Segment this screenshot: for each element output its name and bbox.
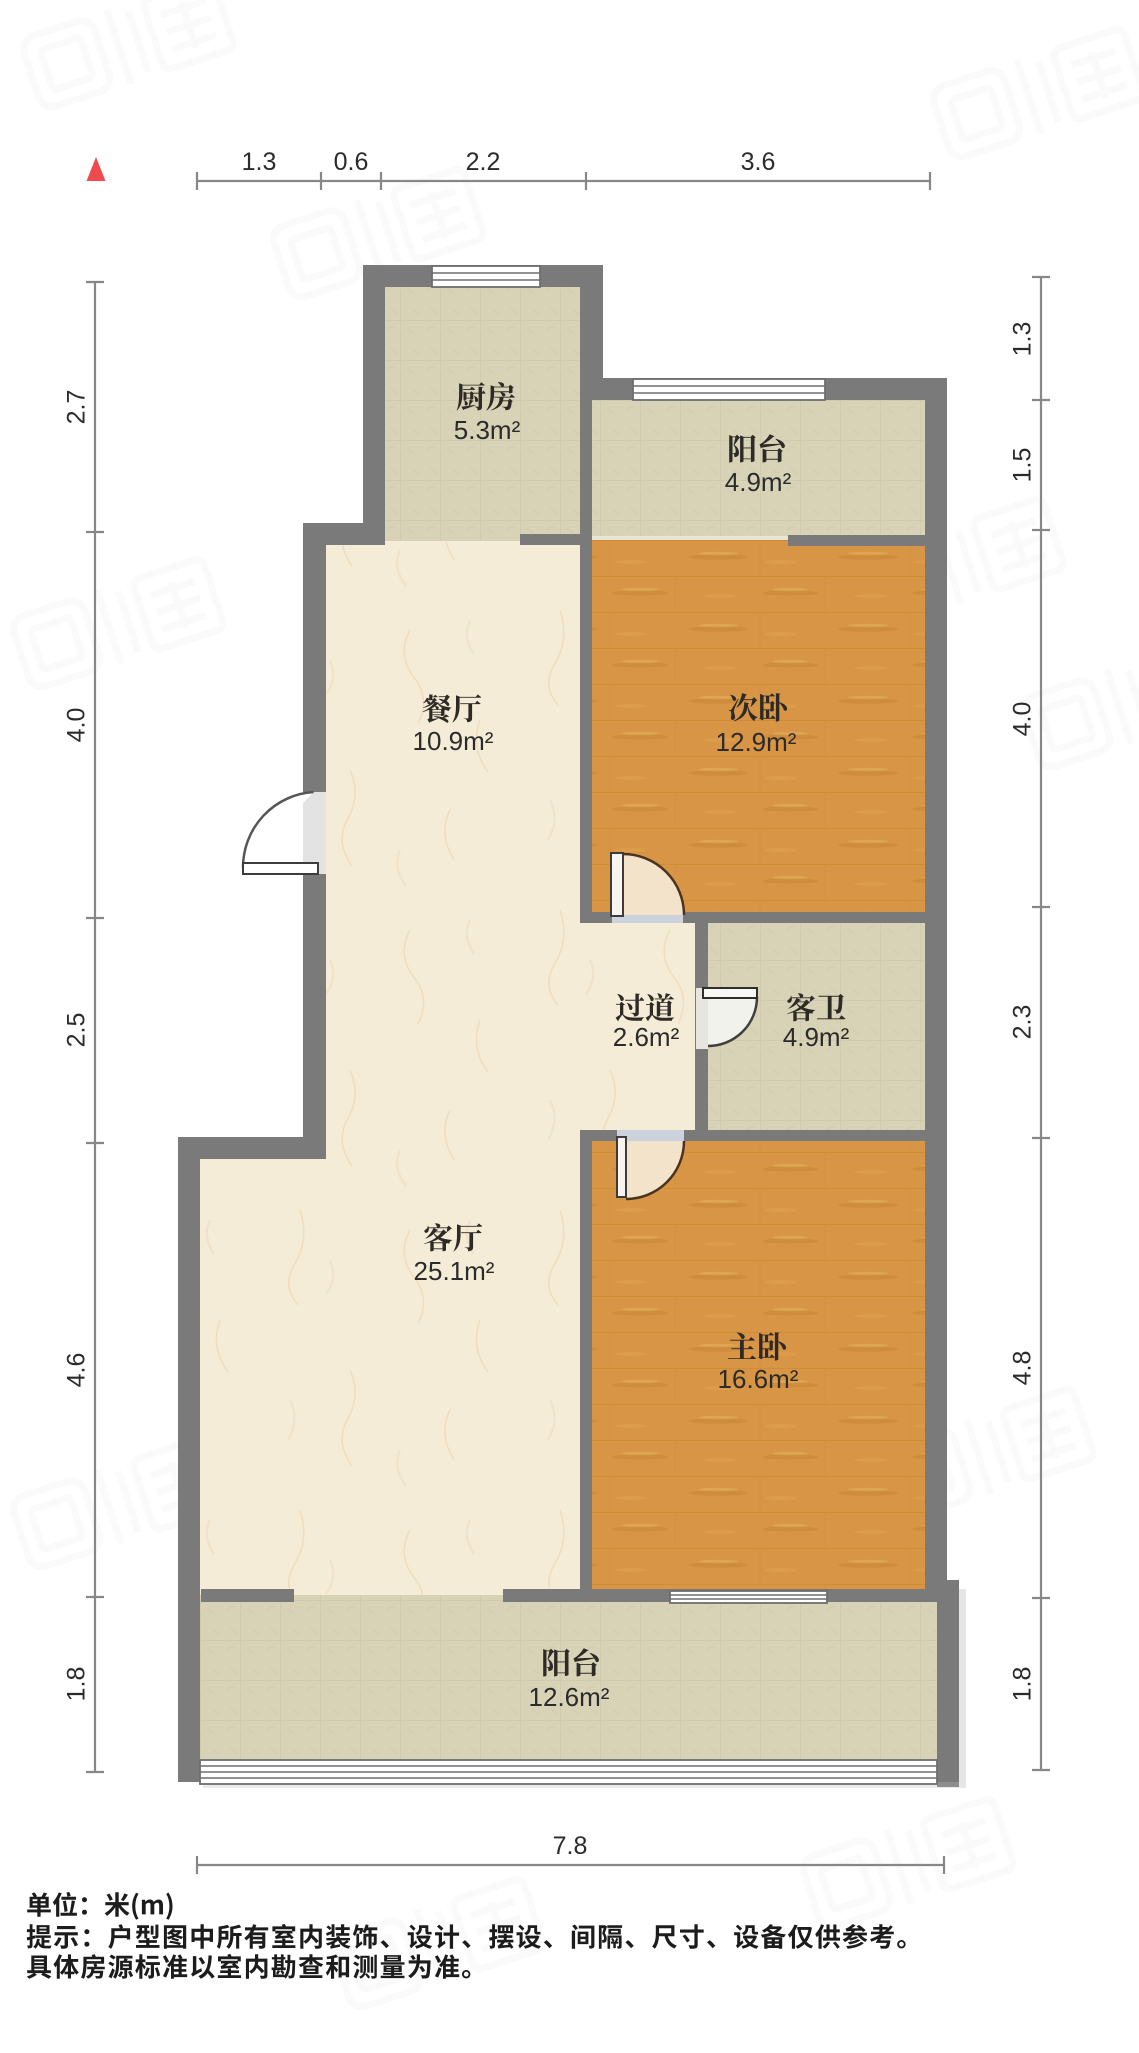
svg-text:1.3: 1.3 [242,148,277,176]
svg-text:12.9m²: 12.9m² [716,727,797,757]
svg-text:2.3: 2.3 [1009,1005,1037,1040]
svg-text:1.5: 1.5 [1009,448,1037,483]
svg-text:4.6: 4.6 [63,1353,91,1388]
svg-text:2.2: 2.2 [466,148,501,176]
svg-text:25.1m²: 25.1m² [414,1256,495,1286]
svg-text:1.8: 1.8 [1009,1667,1037,1702]
svg-text:4.9m²: 4.9m² [783,1022,850,1052]
svg-text:3.6: 3.6 [741,148,776,176]
svg-text:1.8: 1.8 [63,1667,91,1702]
svg-text:12.6m²: 12.6m² [529,1682,610,1712]
svg-text:2.5: 2.5 [63,1013,91,1048]
svg-text:4.8: 4.8 [1009,1351,1037,1386]
svg-text:16.6m²: 16.6m² [718,1364,799,1394]
svg-text:1.3: 1.3 [1009,322,1037,357]
svg-text:5.3m²: 5.3m² [454,415,521,445]
svg-text:2.6m²: 2.6m² [613,1022,680,1052]
svg-text:4.9m²: 4.9m² [725,467,792,497]
svg-text:2.7: 2.7 [63,390,91,425]
svg-text:4.0: 4.0 [63,708,91,743]
svg-text:10.9m²: 10.9m² [413,726,494,756]
svg-text:7.8: 7.8 [553,1832,588,1860]
svg-text:4.0: 4.0 [1009,702,1037,737]
svg-text:0.6: 0.6 [334,148,369,176]
